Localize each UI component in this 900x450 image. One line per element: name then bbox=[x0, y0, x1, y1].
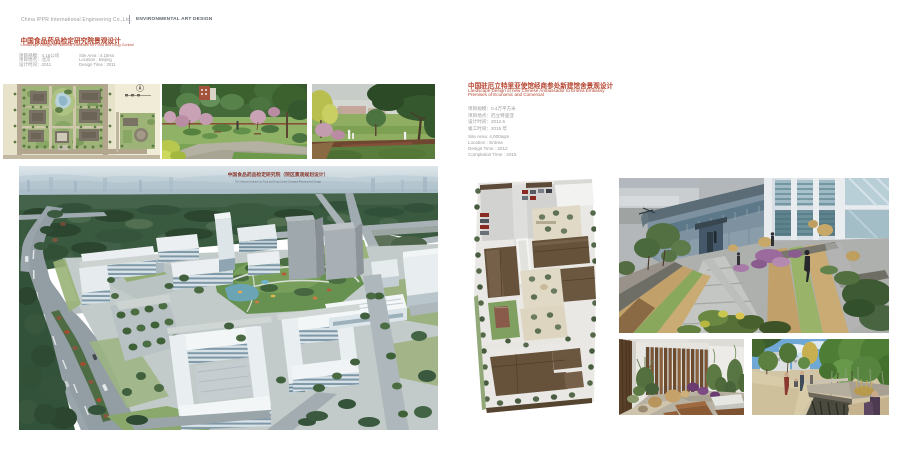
svg-text:The National Institutes for Fo: The National Institutes for Food and Dru… bbox=[235, 181, 322, 184]
svg-text:中国食品药品检定研究院（院区景观规划设计）: 中国食品药品检定研究院（院区景观规划设计） bbox=[228, 171, 329, 178]
